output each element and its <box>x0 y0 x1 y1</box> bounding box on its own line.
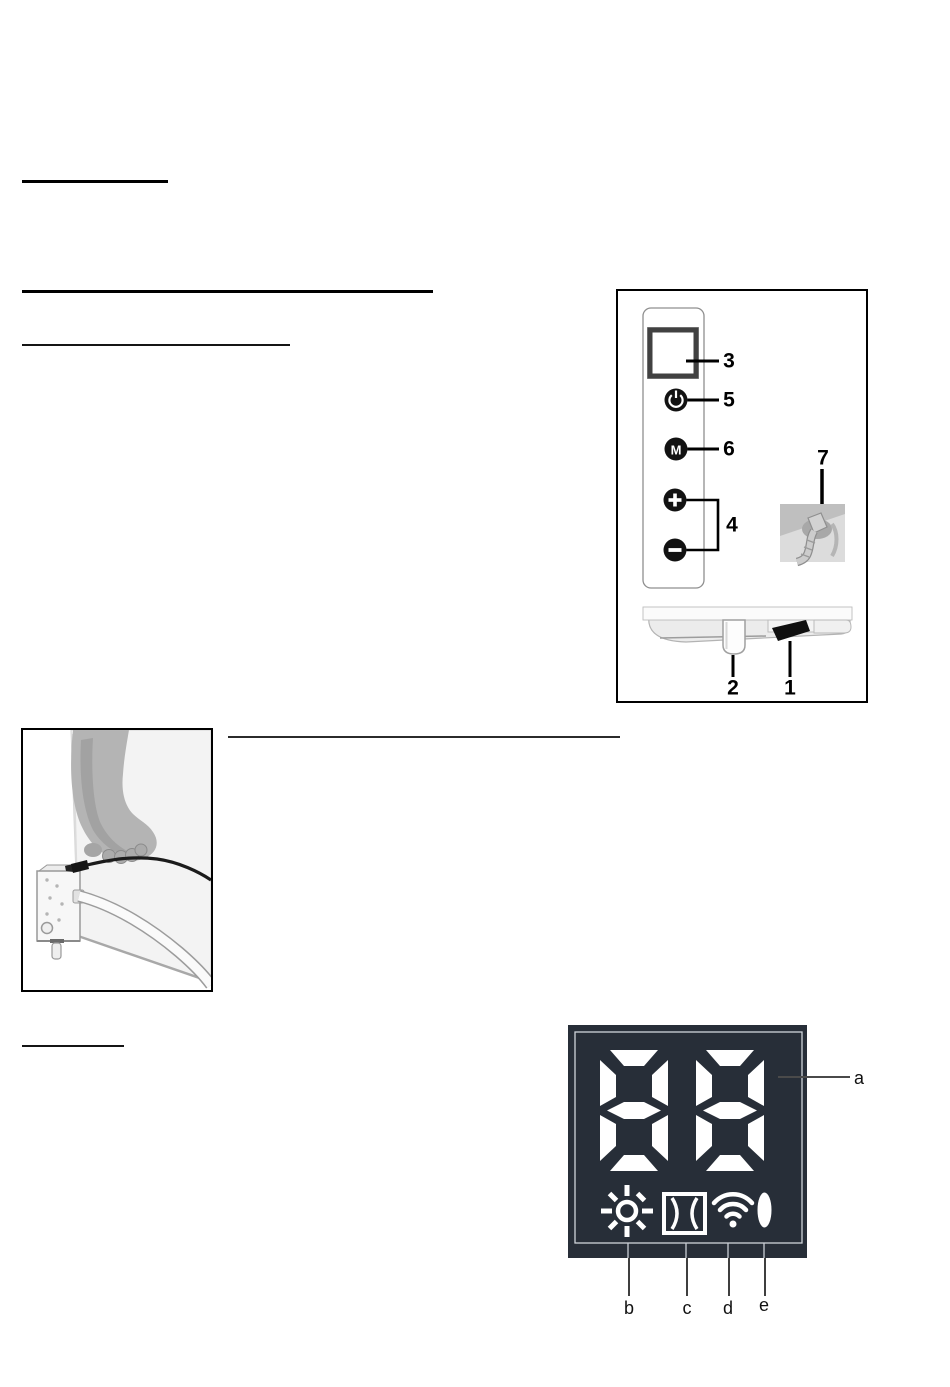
manual-page: 3 5 6 4 7 2 1 M <box>0 0 950 1387</box>
oval-indicator-icon <box>758 1193 772 1228</box>
heading-underline-2 <box>22 290 433 293</box>
callout-c: c <box>683 1299 692 1317</box>
led-display-panel <box>568 1025 807 1258</box>
callout-line-d <box>728 1258 730 1296</box>
callout-ticks-inner <box>628 1243 764 1258</box>
callout-3: 3 <box>723 351 735 372</box>
callout-4: 4 <box>726 515 738 536</box>
mode-button-label: M <box>671 443 682 456</box>
display-screen <box>648 328 699 379</box>
heater-top-edge <box>643 607 852 620</box>
control-panel-illustration <box>618 291 866 701</box>
callout-6: 6 <box>723 439 735 460</box>
callout-7: 7 <box>817 448 829 469</box>
seven-segment-value <box>600 1050 764 1171</box>
callout-b: b <box>624 1299 634 1317</box>
power-button <box>665 389 688 412</box>
callout-5: 5 <box>723 390 735 411</box>
callout-line-a <box>778 1076 850 1078</box>
heater-bottom-view <box>643 607 852 677</box>
callout-2: 2 <box>727 678 739 699</box>
heading-underline-4 <box>228 736 620 738</box>
open-window-icon <box>664 1194 705 1233</box>
led-display-illustration <box>568 1025 807 1258</box>
callout-line-c <box>686 1258 688 1296</box>
plug-photo <box>780 504 845 562</box>
callout-a: a <box>854 1069 864 1087</box>
minus-icon <box>669 548 682 552</box>
wifi-icon <box>714 1194 752 1227</box>
callout-line-e <box>764 1258 766 1296</box>
callout-e: e <box>759 1296 769 1314</box>
heater-end-cap <box>814 620 851 633</box>
heading-underline-3 <box>22 344 290 346</box>
callout-d: d <box>723 1299 733 1317</box>
plus-button <box>664 489 687 512</box>
callout-line-b <box>628 1258 630 1296</box>
control-panel-figure: 3 5 6 4 7 2 1 M <box>616 289 868 703</box>
sun-icon <box>601 1185 653 1237</box>
heading-underline-1 <box>22 180 168 183</box>
minus-button <box>664 539 687 562</box>
heading-underline-5 <box>22 1045 124 1047</box>
installation-photo <box>21 728 213 992</box>
callout-1: 1 <box>784 678 796 699</box>
installation-photo-illustration <box>23 730 211 990</box>
